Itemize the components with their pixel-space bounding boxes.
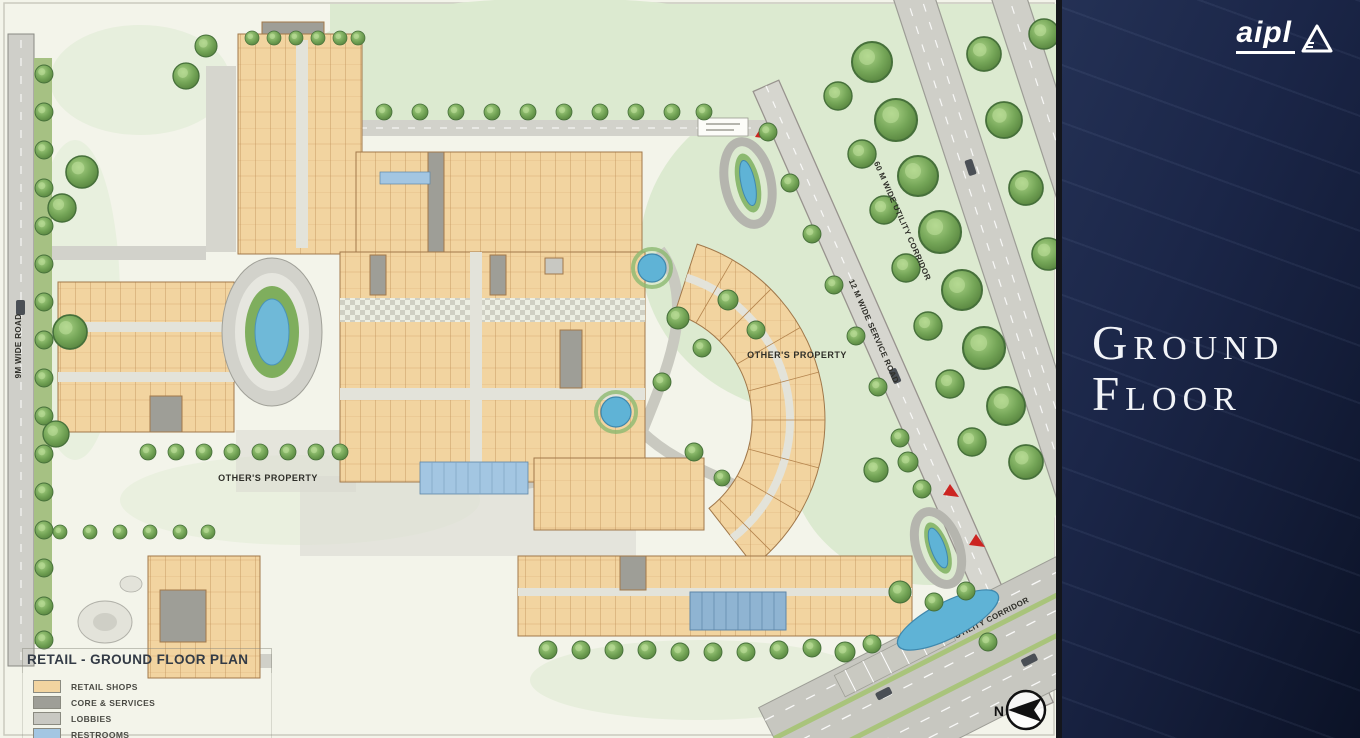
- slide: 9M WIDE ROAD 12 M WIDE SERVICE ROAD: [0, 0, 1360, 738]
- brand-logo: aipl: [1236, 18, 1334, 54]
- legend-label: CORE & SERVICES: [71, 698, 155, 708]
- legend-item-core-services: CORE & SERVICES: [33, 696, 263, 709]
- legend-swatch-core-services: [33, 696, 61, 709]
- others-property-left-label: OTHER'S PROPERTY: [218, 473, 318, 483]
- legend-items: RETAIL SHOPS CORE & SERVICES LOBBIES RES…: [22, 673, 272, 738]
- building-west-block: [58, 282, 234, 432]
- oval-plaza: [222, 258, 322, 406]
- entry-sign: [698, 118, 748, 136]
- others-property-right-label: OTHER'S PROPERTY: [747, 350, 847, 360]
- legend-swatch-lobbies: [33, 712, 61, 725]
- legend: RETAIL - GROUND FLOOR PLAN RETAIL SHOPS …: [22, 648, 272, 738]
- site-plan: 9M WIDE ROAD 12 M WIDE SERVICE ROAD: [0, 0, 1056, 738]
- legend-swatch-retail-shops: [33, 680, 61, 693]
- brand-logo-text: aipl: [1236, 18, 1295, 54]
- building-north-block: [238, 22, 362, 254]
- compass-north-label: N: [994, 703, 1004, 719]
- legend-item-lobbies: LOBBIES: [33, 712, 263, 725]
- building-south-block: [518, 556, 912, 636]
- legend-label: RETAIL SHOPS: [71, 682, 138, 692]
- legend-title: RETAIL - GROUND FLOOR PLAN: [22, 648, 272, 673]
- brand-logo-triangle-icon: [1300, 24, 1334, 54]
- legend-item-restrooms: RESTROOMS: [33, 728, 263, 738]
- page-title-line2: Floor: [1092, 369, 1284, 420]
- legend-label: LOBBIES: [71, 714, 112, 724]
- legend-item-retail-shops: RETAIL SHOPS: [33, 680, 263, 693]
- building-upper-center: [356, 152, 642, 252]
- left-road-label: 9M WIDE ROAD: [14, 314, 23, 379]
- building-central: [340, 252, 645, 482]
- site-plan-drawing: 9M WIDE ROAD 12 M WIDE SERVICE ROAD: [0, 0, 1056, 738]
- legend-label: RESTROOMS: [71, 730, 129, 738]
- side-panel: aipl Ground Floor: [1062, 0, 1360, 738]
- page-title-line1: Ground: [1092, 318, 1284, 369]
- page-title: Ground Floor: [1092, 318, 1284, 420]
- legend-swatch-restrooms: [33, 728, 61, 738]
